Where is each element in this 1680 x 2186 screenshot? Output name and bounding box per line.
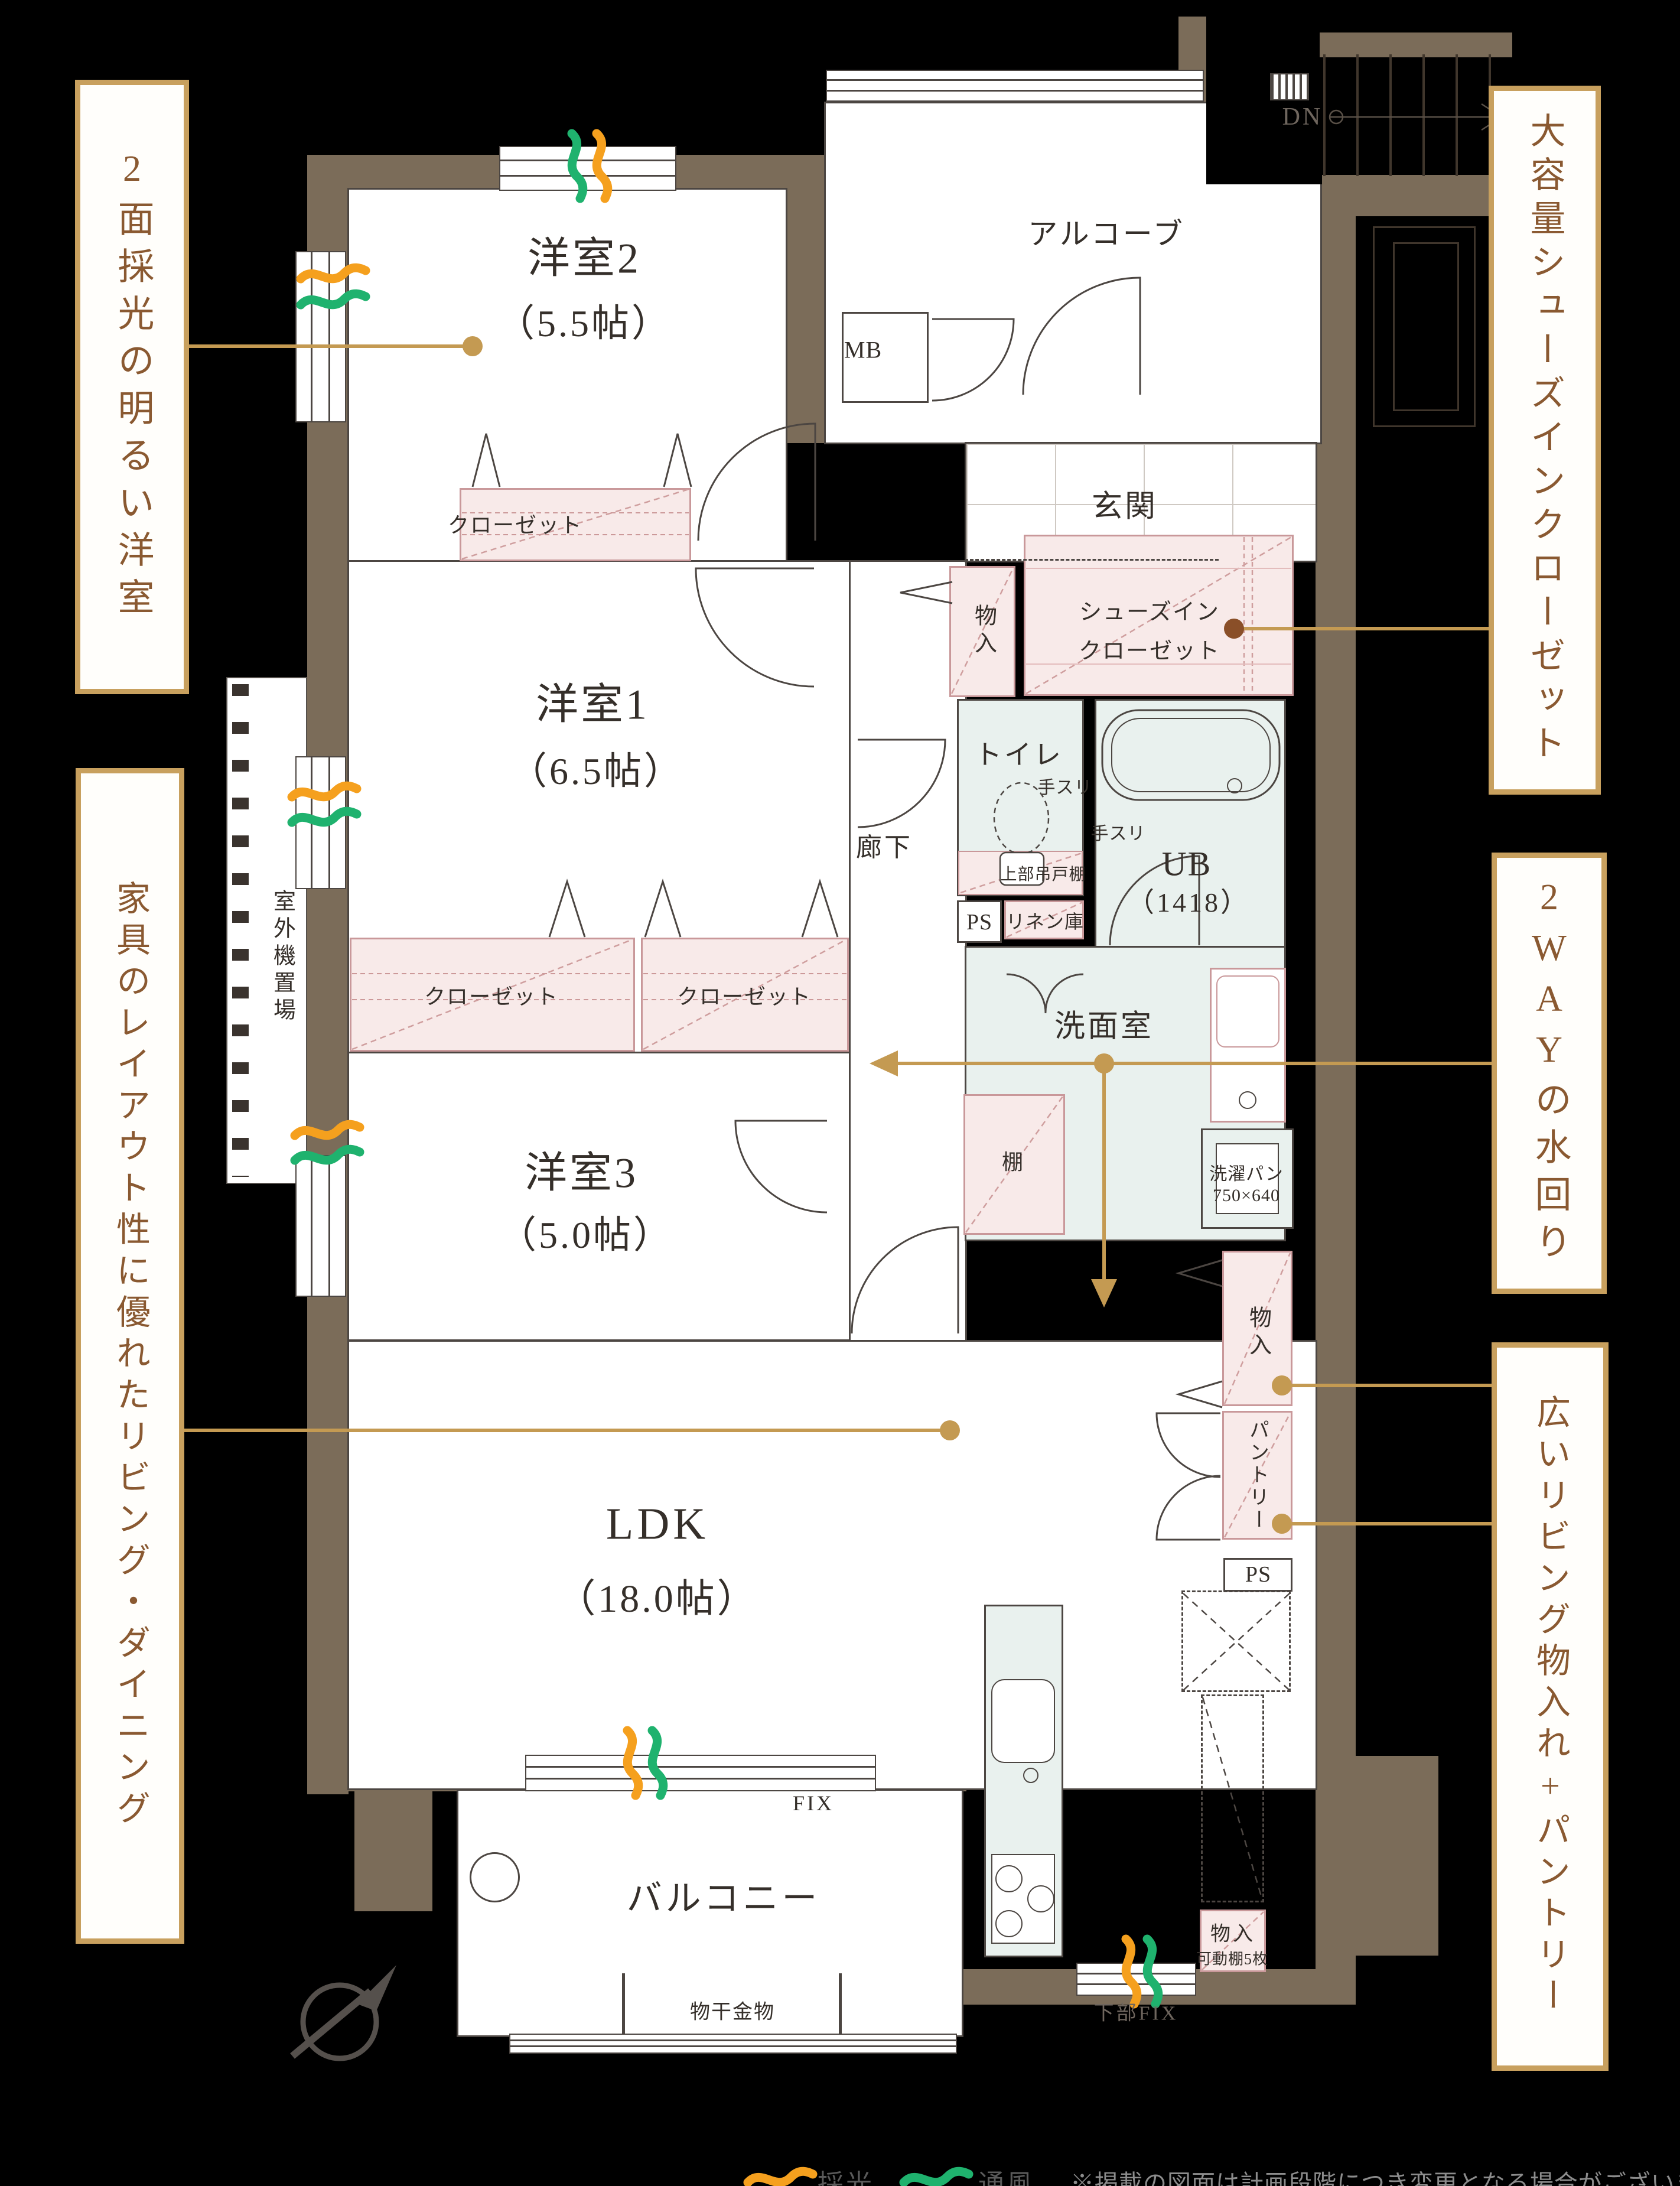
wall-right-low — [1316, 1793, 1356, 2005]
north-compass-icon — [292, 1965, 396, 2058]
bifold-monoire-1 — [1178, 1260, 1222, 1286]
label-movable-shelves: 可動棚5枚 — [1196, 1947, 1268, 1969]
wall-right-outer — [1316, 216, 1356, 1795]
legend-light-label: 採光 — [818, 2162, 874, 2186]
window-yoshitsu2-left — [295, 251, 346, 422]
label-shelf: 棚 — [1002, 1145, 1025, 1176]
window-yoshitsu2-top — [499, 146, 676, 191]
window-yoshitsu3-left — [295, 1155, 346, 1297]
callout-furniture-ld-text: 家具のレイアウト性に優れたリビング・ダイニング — [113, 880, 147, 1832]
callout-storage-pantry-text: 広いリビング物入れ+パントリー — [1533, 1394, 1567, 2019]
callout-2way: 2WAYの水回り — [1492, 853, 1607, 1294]
label-ub: UB — [1162, 844, 1212, 884]
label-ps-lower: PS — [1245, 1562, 1271, 1588]
callout-sic-text: 大容量シューズインクローゼット — [1527, 112, 1562, 768]
label-laundry-pan: 洗濯パン — [1209, 1159, 1284, 1185]
cupboard-space — [1201, 1694, 1264, 1902]
label-mb: MB — [844, 336, 882, 364]
wall-stair-top — [1320, 32, 1512, 57]
leader-line-5b — [1282, 1522, 1492, 1525]
label-yoshitsu2-size: （5.5帖） — [497, 293, 672, 347]
alcove-railing — [826, 70, 1204, 102]
leader-arrow-left — [870, 1050, 898, 1076]
label-closet-left: クローゼット — [424, 980, 559, 1010]
stairs — [1323, 54, 1512, 176]
leader-line-4 — [896, 1062, 1492, 1065]
callout-storage-pantry: 広いリビング物入れ+パントリー — [1492, 1342, 1609, 2071]
label-ps-upper: PS — [966, 909, 992, 935]
label-sic-1: シューズイン — [1079, 594, 1220, 626]
label-ldk-size: （18.0帖） — [556, 1567, 758, 1624]
floor-plan-page: 室外機置場 — [0, 0, 1680, 2186]
leader-arrow-down — [1091, 1279, 1117, 1307]
wall-alcove-left — [786, 155, 826, 443]
legend-note: ※掲載の図面は計画段階につき変更となる場合がございます — [1070, 2164, 1680, 2186]
leader-dot-4 — [1094, 1053, 1114, 1074]
label-monoire-ldk: 物入 — [1242, 1306, 1275, 1360]
label-closet-right: クローゼット — [677, 980, 812, 1010]
outdoor-unit-hatch — [232, 684, 249, 1177]
label-washroom: 洗面室 — [1054, 1001, 1154, 1046]
leader-dot-3 — [1224, 619, 1244, 639]
label-laundry-size: 750×640 — [1213, 1186, 1280, 1206]
balcony-column — [470, 1852, 520, 1902]
label-tesuri-ub: 手スリ — [1091, 819, 1146, 845]
callout-bright-room-text: 2面採光の明るい洋室 — [114, 149, 151, 625]
window-lower-fix — [1076, 1963, 1196, 1996]
leader-dot-5b — [1272, 1514, 1292, 1534]
leader-line-2 — [184, 1429, 950, 1432]
leader-dot-1 — [463, 336, 483, 356]
label-yoshitsu1: 洋室1 — [536, 669, 649, 731]
room-ldk — [347, 1340, 1317, 1790]
label-yoshitsu3: 洋室3 — [525, 1138, 638, 1200]
vanity — [1210, 968, 1286, 1123]
label-monoire-bottom: 物入 — [1210, 1918, 1255, 1947]
legend-vent-icon — [904, 2171, 969, 2182]
window-ldk-balcony — [525, 1755, 876, 1791]
kitchen-stove — [991, 1854, 1055, 1944]
label-ldk: LDK — [606, 1499, 709, 1550]
label-sic-2: クローゼット — [1079, 633, 1220, 665]
vent-grille — [1270, 73, 1309, 100]
label-fix: FIX — [793, 1791, 834, 1816]
label-pantry: パントリー — [1243, 1419, 1272, 1531]
label-dn: DN — [1282, 103, 1323, 131]
legend-vent-label: 通風 — [978, 2162, 1035, 2186]
label-monoire-entry: 物入 — [968, 604, 1000, 658]
label-alcove: アルコーブ — [1028, 210, 1185, 253]
label-yoshitsu2: 洋室2 — [528, 223, 641, 285]
label-upper-cabinet: 上部吊戸棚 — [1000, 861, 1086, 885]
callout-bright-room: 2面採光の明るい洋室 — [75, 80, 189, 694]
leader-line-1 — [189, 344, 473, 348]
label-lower-fix: 下部FIX — [1094, 1997, 1178, 2026]
window-yoshitsu1-left — [295, 756, 346, 889]
wall-right-jog — [1356, 1756, 1438, 1956]
genkan-step-line — [965, 559, 1219, 561]
label-toilet: トイレ — [975, 733, 1063, 772]
label-genkan: 玄関 — [1092, 482, 1158, 526]
elevator-inner — [1393, 242, 1459, 411]
label-balcony: バルコニー — [627, 1870, 821, 1921]
balcony-railing — [509, 2034, 957, 2054]
leader-line-5a — [1282, 1384, 1492, 1387]
label-closet-y2: クローゼット — [448, 508, 582, 539]
leader-dot-2 — [940, 1420, 960, 1440]
kitchen-faucet — [1023, 1768, 1038, 1783]
label-ub-size: （1418） — [1127, 881, 1250, 920]
outdoor-unit-label: 室外機置場 — [266, 889, 299, 1025]
callout-2way-text: 2WAYの水回り — [1531, 877, 1568, 1270]
legend-light-icon — [748, 2171, 813, 2182]
callout-furniture-ld: 家具のレイアウト性に優れたリビング・ダイニング — [76, 768, 184, 1944]
refrigerator-space — [1181, 1590, 1291, 1692]
label-hallway: 廊下 — [856, 826, 913, 864]
label-yoshitsu3-size: （5.0帖） — [499, 1205, 673, 1259]
label-monohoshi: 物干金物 — [690, 1996, 775, 2025]
callout-sic: 大容量シューズインクローゼット — [1489, 86, 1601, 795]
leader-line-3 — [1234, 627, 1489, 630]
label-linen: リネン庫 — [1006, 907, 1084, 934]
label-yoshitsu1-size: （6.5帖） — [509, 741, 684, 795]
label-tesuri-toilet: 手スリ — [1038, 773, 1093, 799]
kitchen-sink — [991, 1679, 1055, 1763]
leader-line-4b — [1102, 1063, 1106, 1285]
leader-dot-5a — [1272, 1375, 1292, 1395]
